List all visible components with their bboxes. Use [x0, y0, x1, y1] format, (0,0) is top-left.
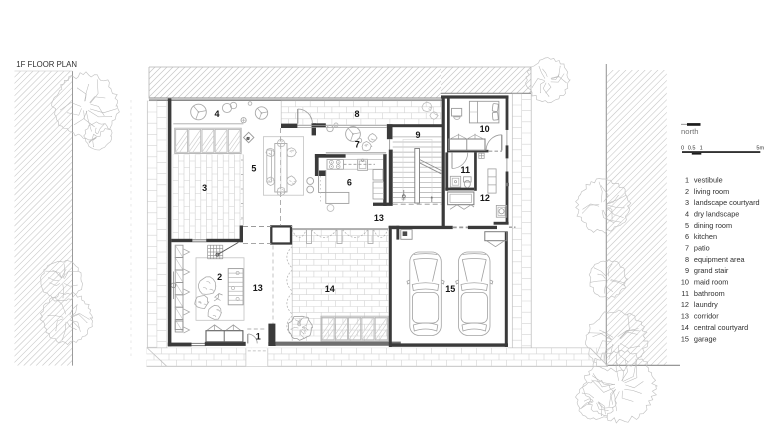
svg-text:14: 14	[325, 284, 335, 294]
svg-text:9: 9	[685, 266, 689, 275]
svg-text:corridor: corridor	[694, 312, 719, 321]
svg-text:11: 11	[460, 165, 470, 175]
svg-text:maid room: maid room	[694, 278, 728, 287]
svg-text:3: 3	[685, 198, 689, 207]
svg-text:8: 8	[685, 255, 689, 264]
svg-text:dry landscape: dry landscape	[694, 209, 739, 218]
svg-text:12: 12	[681, 300, 689, 309]
svg-text:4: 4	[685, 209, 689, 218]
svg-text:1: 1	[700, 145, 703, 151]
svg-text:13: 13	[681, 312, 689, 321]
svg-text:0: 0	[681, 145, 684, 151]
svg-text:10: 10	[681, 278, 689, 287]
svg-text:4: 4	[214, 109, 219, 119]
svg-text:up: up	[402, 197, 406, 201]
svg-text:11: 11	[681, 289, 689, 298]
svg-text:6: 6	[685, 232, 689, 241]
svg-text:1: 1	[256, 332, 261, 342]
svg-text:2: 2	[685, 187, 689, 196]
svg-text:14: 14	[681, 323, 689, 332]
svg-text:7: 7	[685, 244, 689, 253]
svg-text:0.5: 0.5	[688, 145, 696, 151]
svg-text:7: 7	[355, 139, 360, 149]
svg-text:central courtyard: central courtyard	[694, 323, 748, 332]
svg-text:vestibule: vestibule	[694, 175, 723, 184]
svg-text:grand stair: grand stair	[694, 266, 729, 275]
svg-text:landscape courtyard: landscape courtyard	[694, 198, 760, 207]
svg-text:1F FLOOR PLAN: 1F FLOOR PLAN	[16, 60, 77, 69]
svg-text:equipment area: equipment area	[694, 255, 746, 264]
svg-text:2: 2	[217, 272, 222, 282]
svg-text:13: 13	[374, 213, 384, 223]
svg-text:12: 12	[480, 193, 490, 203]
svg-text:5: 5	[251, 164, 256, 174]
svg-text:9: 9	[415, 130, 420, 140]
svg-text:north: north	[681, 127, 699, 136]
svg-text:dining room: dining room	[694, 221, 732, 230]
svg-text:laundry: laundry	[694, 300, 718, 309]
svg-text:3: 3	[202, 183, 207, 193]
svg-text:13: 13	[253, 283, 263, 293]
svg-text:5m: 5m	[756, 145, 764, 151]
svg-text:garage: garage	[694, 334, 717, 343]
svg-text:kitchen: kitchen	[694, 232, 717, 241]
svg-text:living room: living room	[694, 187, 729, 196]
svg-text:bathroom: bathroom	[694, 289, 725, 298]
svg-text:8: 8	[354, 109, 359, 119]
svg-text:6: 6	[347, 178, 352, 188]
svg-text:1: 1	[685, 175, 689, 184]
svg-text:patio: patio	[694, 244, 710, 253]
svg-text:15: 15	[681, 334, 689, 343]
svg-text:5: 5	[685, 221, 689, 230]
svg-text:10: 10	[480, 124, 490, 134]
svg-text:15: 15	[445, 284, 455, 294]
